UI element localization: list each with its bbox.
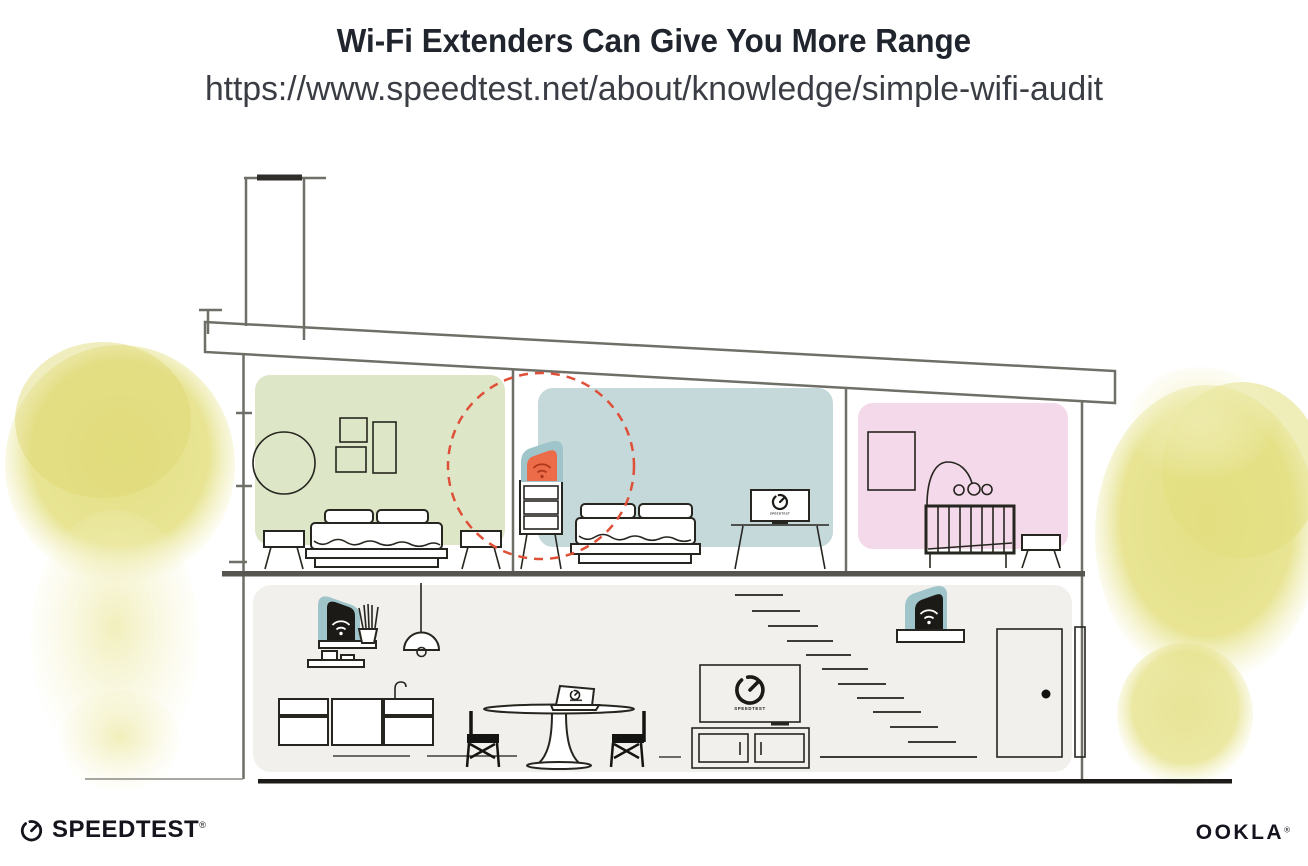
chimney (244, 175, 326, 341)
tree-blob-right-top (1128, 367, 1272, 483)
door-knob (1042, 690, 1051, 699)
tree-blob-left-dark (15, 342, 191, 498)
wifi-extender-bedroom (521, 441, 563, 482)
illustration-canvas: SPEEDTEST (0, 0, 1308, 861)
pink-nursery-block (858, 403, 1068, 549)
foliage-right (1095, 367, 1308, 787)
speedtest-logo: SPEEDTEST® (18, 816, 206, 844)
bed (306, 510, 447, 567)
page-header: Wi-Fi Extenders Can Give You More Range … (0, 22, 1308, 109)
house-cross-section-illustration: SPEEDTEST (0, 0, 1308, 861)
bed (571, 504, 700, 563)
bush-right (1117, 643, 1253, 787)
nightstand (264, 531, 304, 569)
stool (1022, 535, 1060, 568)
wall-shelf (308, 660, 364, 667)
dresser (520, 481, 562, 569)
ground-line (258, 779, 1232, 784)
registered-mark: ® (1284, 826, 1290, 835)
stair-shelf (897, 630, 964, 642)
tv-label: SPEEDTEST (734, 706, 766, 711)
foliage-left (5, 342, 235, 794)
source-url: https://www.speedtest.net/about/knowledg… (7, 70, 1302, 109)
ookla-logo: OOKLA® (1196, 821, 1290, 845)
ookla-wordmark: OOKLA (1196, 821, 1284, 844)
speedtest-gauge-icon (18, 817, 45, 844)
cup (322, 651, 337, 660)
bedroom-tv-label: SPEEDTEST (770, 512, 790, 516)
chimney-cap (257, 175, 302, 181)
registered-mark: ® (199, 820, 206, 830)
page-title: Wi-Fi Extenders Can Give You More Range (337, 22, 971, 60)
door-trim (1075, 627, 1085, 757)
floor-divider (222, 571, 1085, 577)
speedtest-wordmark: SPEEDTEST (52, 816, 199, 844)
